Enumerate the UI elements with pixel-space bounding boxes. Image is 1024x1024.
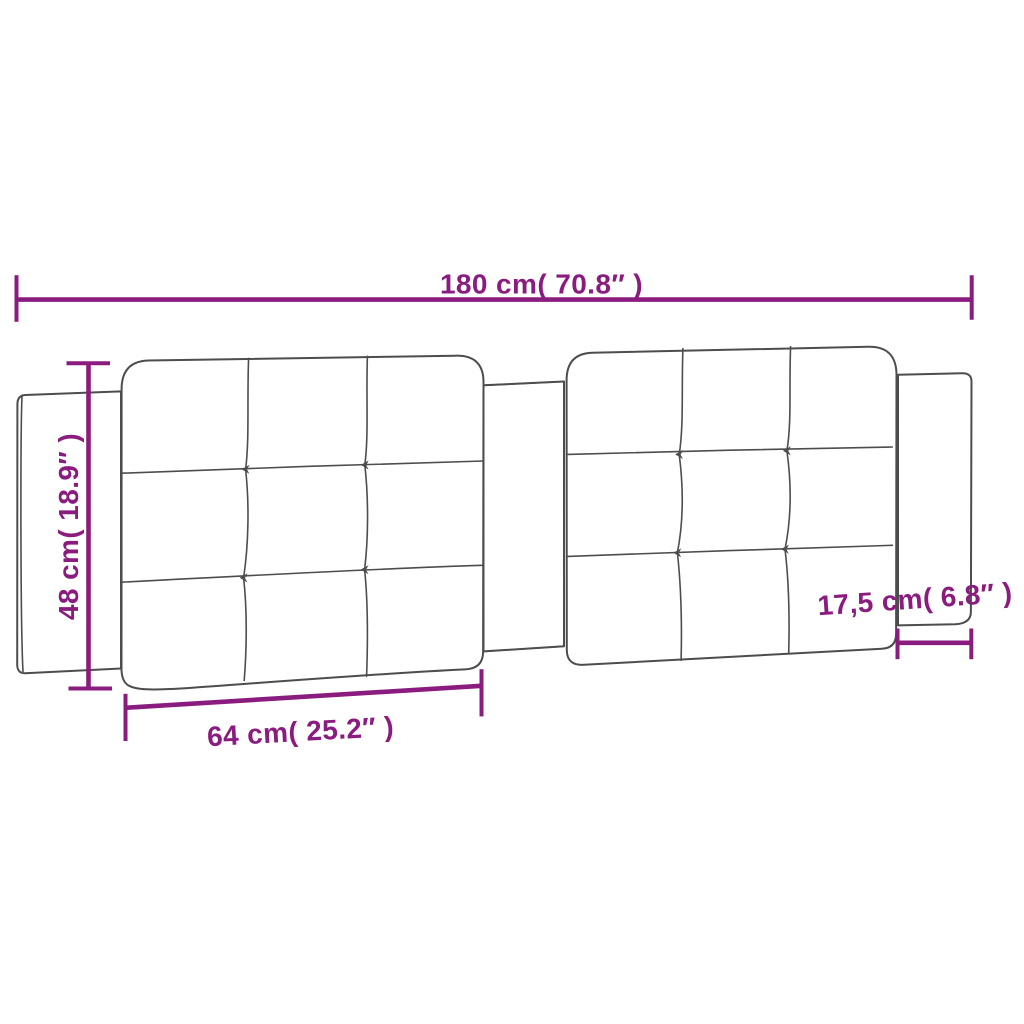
svg-text:180 cm( 70.8″ ): 180 cm( 70.8″ ): [440, 269, 643, 300]
svg-text:48 cm( 18.9″ ): 48 cm( 18.9″ ): [53, 433, 84, 620]
